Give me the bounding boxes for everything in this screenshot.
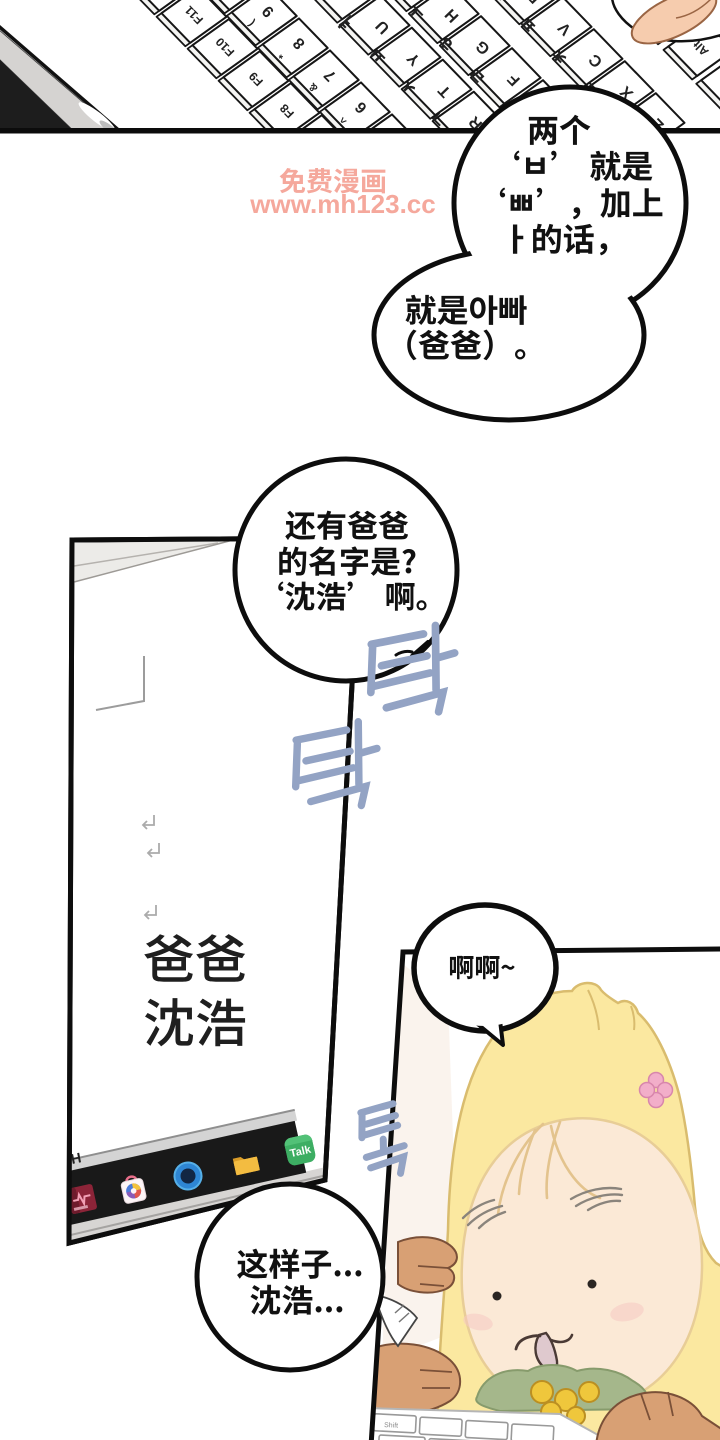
svg-text:Shift: Shift <box>384 1422 398 1430</box>
svg-text:www.mh123.cc: www.mh123.cc <box>249 189 435 219</box>
